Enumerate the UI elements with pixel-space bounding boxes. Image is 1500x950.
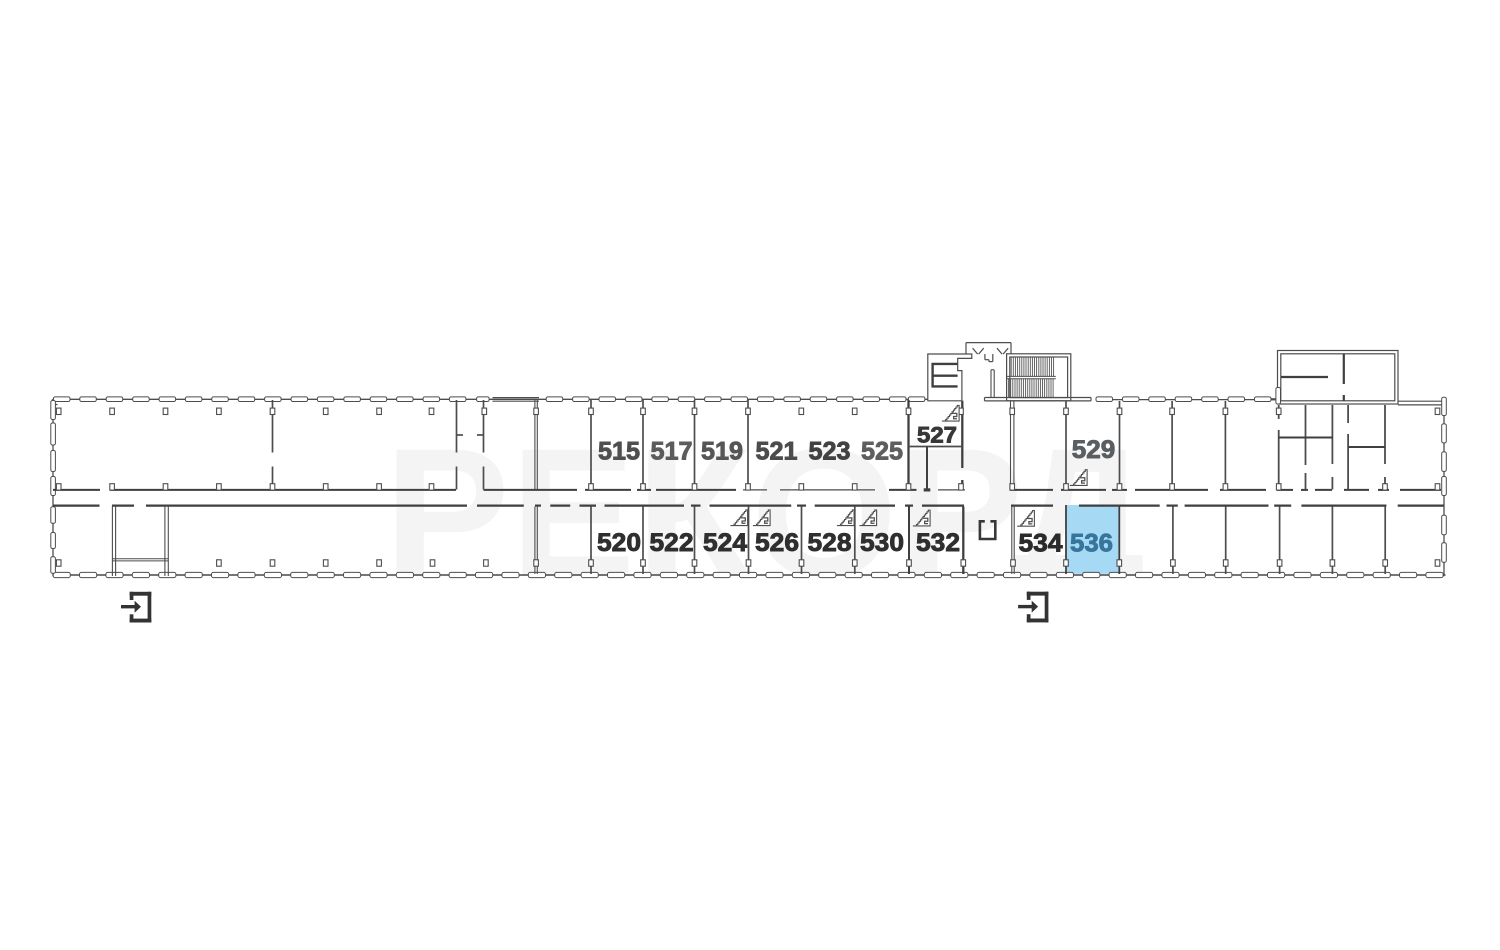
svg-text:523: 523 [809,437,851,465]
svg-text:536: 536 [1070,529,1113,557]
svg-text:530: 530 [860,529,904,557]
svg-text:525: 525 [861,437,903,465]
svg-text:532: 532 [916,529,960,557]
svg-text:522: 522 [650,529,694,557]
svg-text:526: 526 [755,529,799,557]
svg-text:519: 519 [701,437,743,465]
svg-text:520: 520 [597,529,641,557]
svg-text:534: 534 [1019,529,1063,557]
svg-text:527: 527 [917,423,957,448]
svg-text:521: 521 [756,437,798,465]
svg-text:524: 524 [703,529,747,557]
svg-text:515: 515 [598,437,640,465]
svg-text:528: 528 [808,529,852,557]
svg-text:517: 517 [651,437,693,465]
svg-text:529: 529 [1072,436,1116,464]
